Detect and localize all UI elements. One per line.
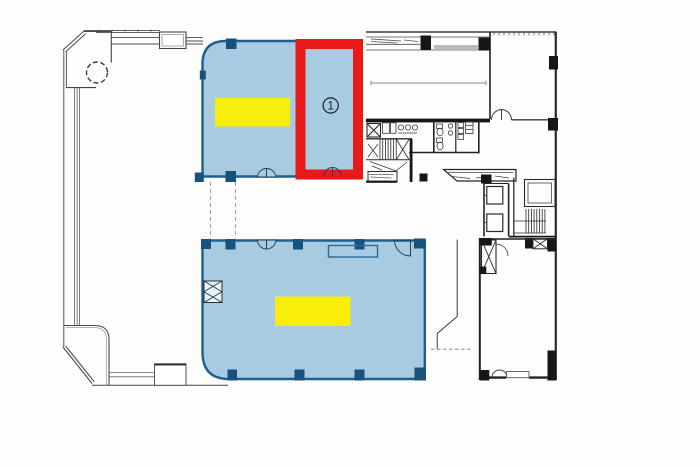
svg-text:1: 1 (327, 101, 333, 113)
